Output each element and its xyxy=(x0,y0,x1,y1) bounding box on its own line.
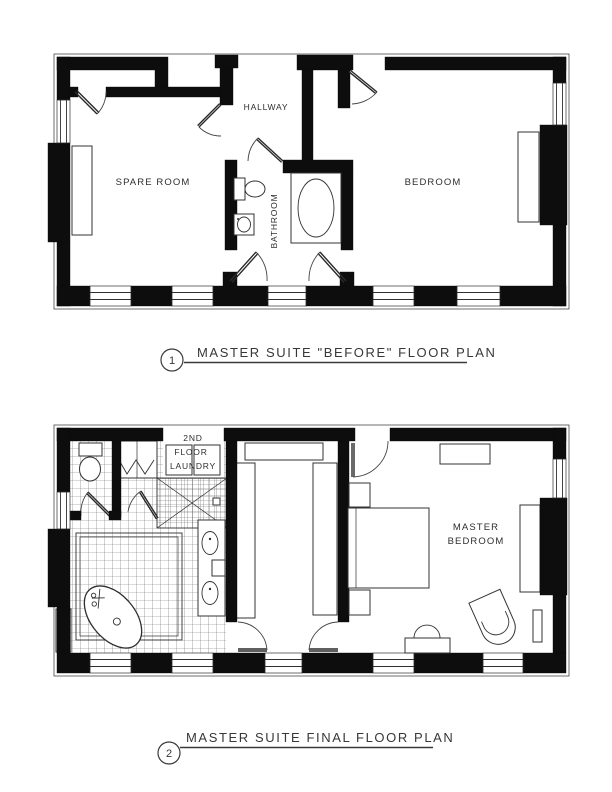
plan-title: MASTER SUITE "BEFORE" FLOOR PLAN xyxy=(197,345,497,360)
door-bathroom-south xyxy=(230,252,267,282)
plan-title: MASTER SUITE FINAL FLOOR PLAN xyxy=(186,730,454,745)
bed xyxy=(348,508,429,588)
radiator xyxy=(533,610,542,642)
window-icon xyxy=(457,286,500,306)
window-icon xyxy=(172,286,213,306)
room-label-bathroom: BATHROOM xyxy=(269,194,279,249)
final-plan: 2ND FLOOR LAUNDRY xyxy=(48,425,569,676)
final-plan-caption: 2 MASTER SUITE FINAL FLOOR PLAN xyxy=(158,730,454,764)
room-label-hallway: HALLWAY xyxy=(244,102,289,112)
door-master-bedroom-entry xyxy=(352,441,388,477)
window-icon xyxy=(373,286,414,306)
door-bathroom-to-hall xyxy=(238,622,267,651)
window-icon xyxy=(553,459,566,498)
window-icon xyxy=(265,653,302,673)
window-seat xyxy=(520,505,540,592)
laundry-label-2: FLOOR xyxy=(174,447,207,457)
nightstand xyxy=(349,590,370,615)
dressing-hall xyxy=(233,443,337,618)
before-plan-caption: 1 MASTER SUITE "BEFORE" FLOOR PLAN xyxy=(161,345,497,371)
window-icon xyxy=(553,83,566,125)
door-bedroom-south xyxy=(309,252,346,282)
door-stair-landing xyxy=(198,104,221,136)
window-icon xyxy=(483,653,523,673)
door-bedroom-to-hall xyxy=(309,622,338,651)
linen-closet xyxy=(117,441,157,478)
window-icon xyxy=(268,286,306,306)
window-seat xyxy=(72,146,92,235)
plan-number: 2 xyxy=(166,748,172,760)
room-label-master-1: MASTER xyxy=(453,522,499,533)
before-plan: SPARE ROOM HALLWAY BATHROOM BEDROOM xyxy=(48,54,569,309)
bathtub-icon xyxy=(291,173,341,243)
laundry-label-3: LAUNDRY xyxy=(170,461,216,471)
toilet-icon xyxy=(79,443,102,481)
dresser xyxy=(440,444,490,464)
laundry-label-1: 2ND xyxy=(183,433,202,443)
window-icon xyxy=(90,653,131,673)
nightstand xyxy=(349,483,370,507)
floor-plan-sheet: SPARE ROOM HALLWAY BATHROOM BEDROOM 1 MA… xyxy=(0,0,612,792)
shelf xyxy=(245,443,323,460)
wardrobe xyxy=(313,463,337,615)
window-seat xyxy=(518,132,539,222)
room-label-master-2: BEDROOM xyxy=(448,536,505,547)
toilet-icon xyxy=(234,178,265,200)
door-bedroom-entry xyxy=(349,70,377,104)
room-label-spare-room: SPARE ROOM xyxy=(116,177,191,188)
plan-number: 1 xyxy=(169,355,175,367)
plan-canvas: SPARE ROOM HALLWAY BATHROOM BEDROOM 1 MA… xyxy=(0,0,612,792)
bench-icon xyxy=(405,625,450,653)
shower-drain xyxy=(213,498,220,505)
window-icon xyxy=(57,100,70,143)
window-icon xyxy=(172,653,213,673)
window-icon xyxy=(57,492,70,529)
window-icon xyxy=(90,286,131,306)
door-spare-room xyxy=(75,91,106,114)
laundry-niche: 2ND FLOOR LAUNDRY xyxy=(163,426,224,478)
window-icon xyxy=(373,653,414,673)
armchair-icon xyxy=(469,589,521,649)
room-label-bedroom: BEDROOM xyxy=(405,177,462,188)
double-vanity xyxy=(198,520,225,616)
door-bathroom xyxy=(248,138,283,162)
sink-icon xyxy=(234,214,254,235)
